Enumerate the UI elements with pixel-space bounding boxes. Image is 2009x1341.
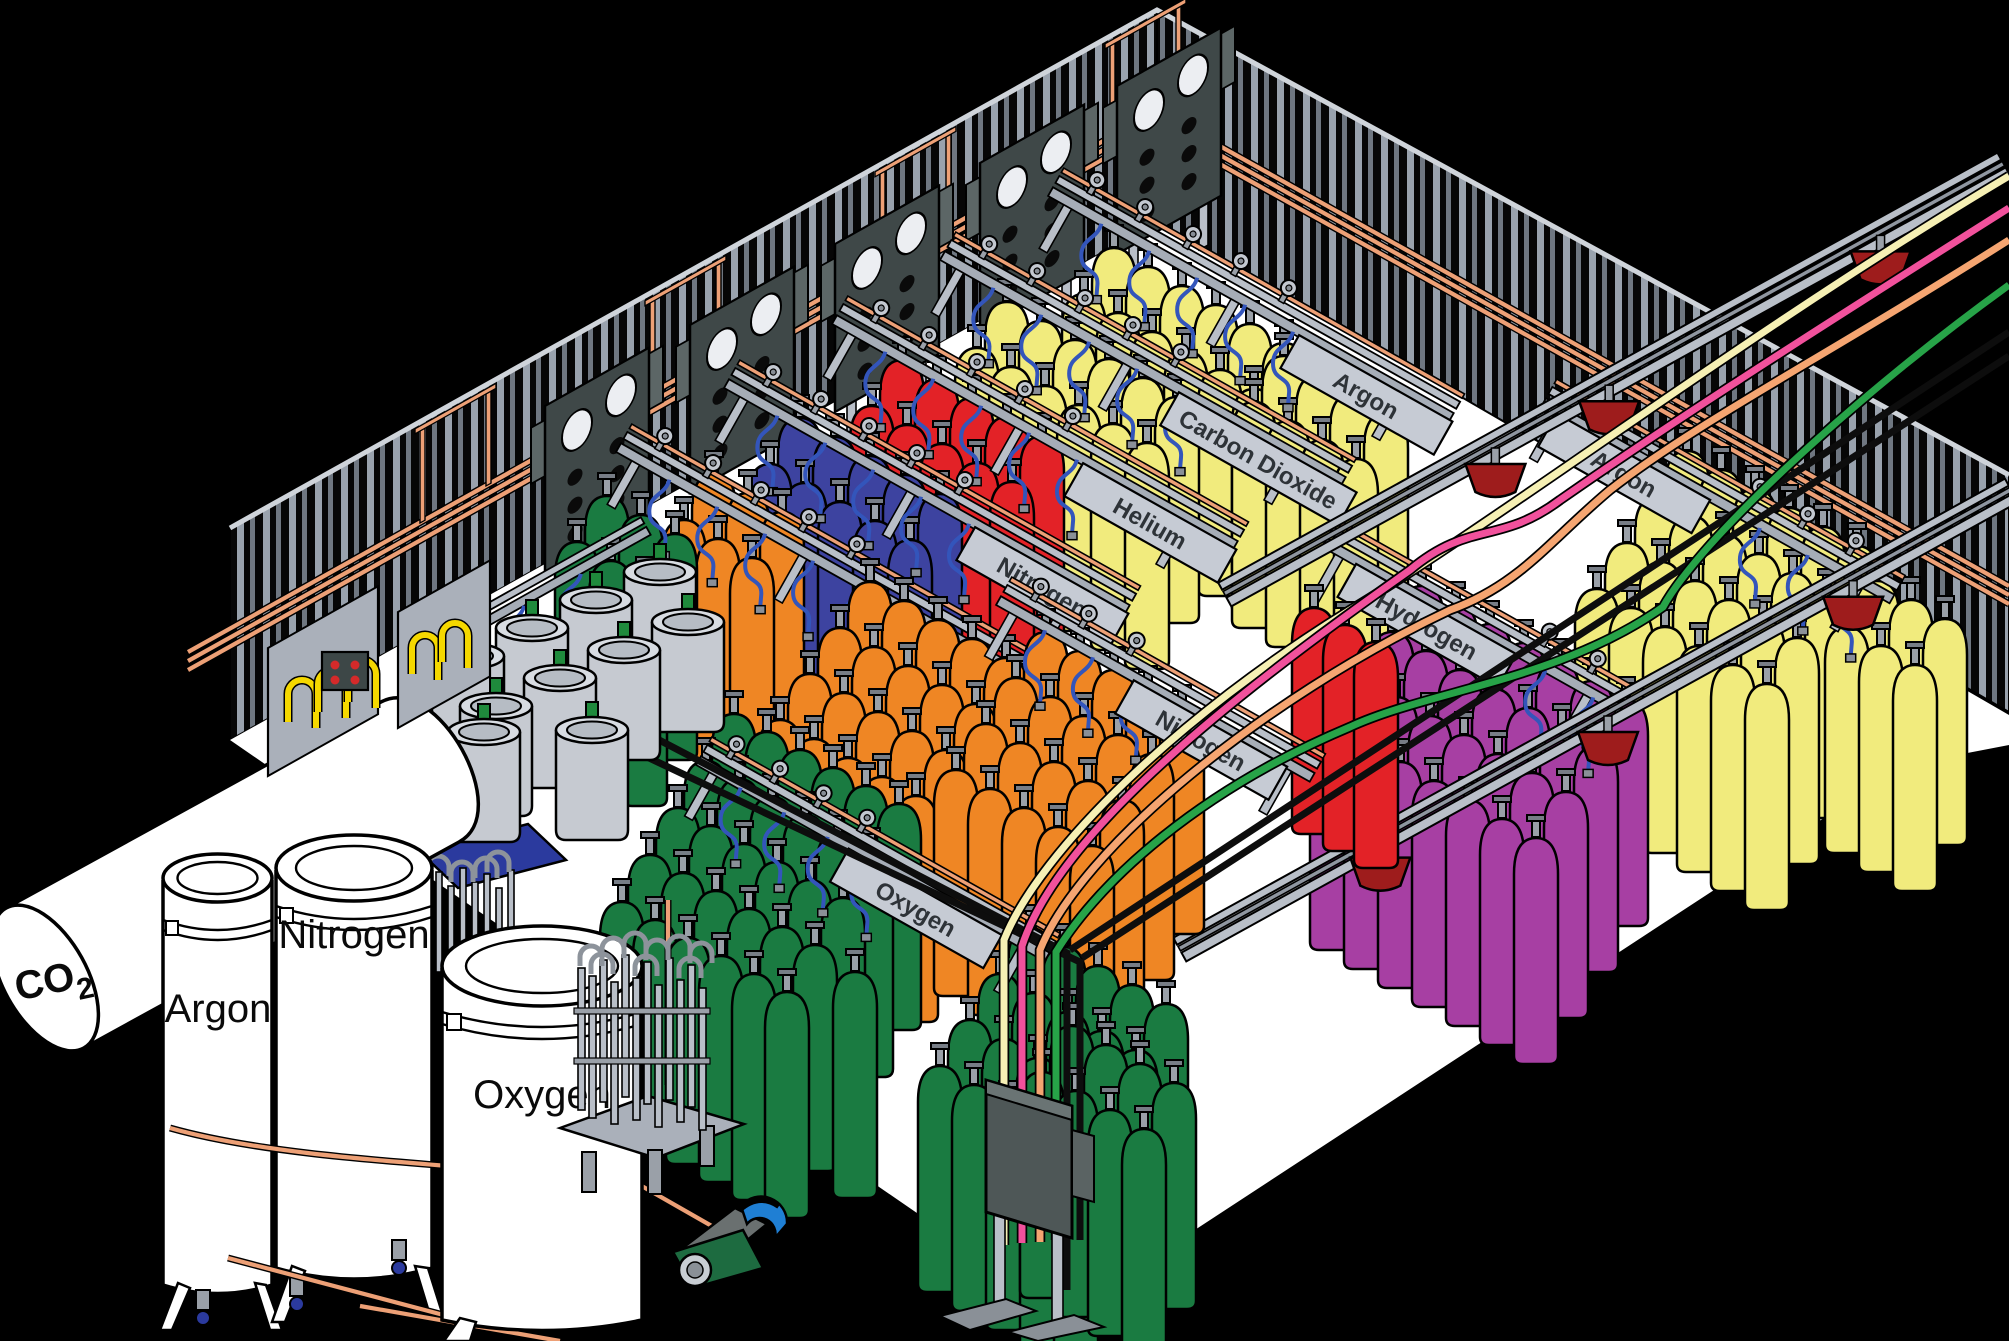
argon-tank-label: Argon: [165, 987, 272, 1031]
gas-cylinder: [1893, 642, 1937, 891]
nitrogen-storage-tank: Nitrogen: [272, 835, 445, 1322]
fill-station-control-box: [322, 652, 368, 690]
gas-plant-scene: Argon Carbon Dioxide Helium: [0, 0, 2009, 1341]
gas-cylinder: [833, 949, 877, 1198]
gas-cylinder: [1745, 661, 1789, 910]
gas-cylinder: [1514, 815, 1558, 1064]
nitrogen-tank-label: Nitrogen: [278, 913, 429, 957]
lone-oxygen-cylinder: [833, 949, 877, 1198]
gas-cylinder: [765, 969, 809, 1218]
gas-cylinder: [1122, 1106, 1166, 1341]
argon-storage-tank: Argon: [160, 854, 282, 1330]
gas-plant-illustration: Argon Carbon Dioxide Helium: [0, 0, 2009, 1341]
